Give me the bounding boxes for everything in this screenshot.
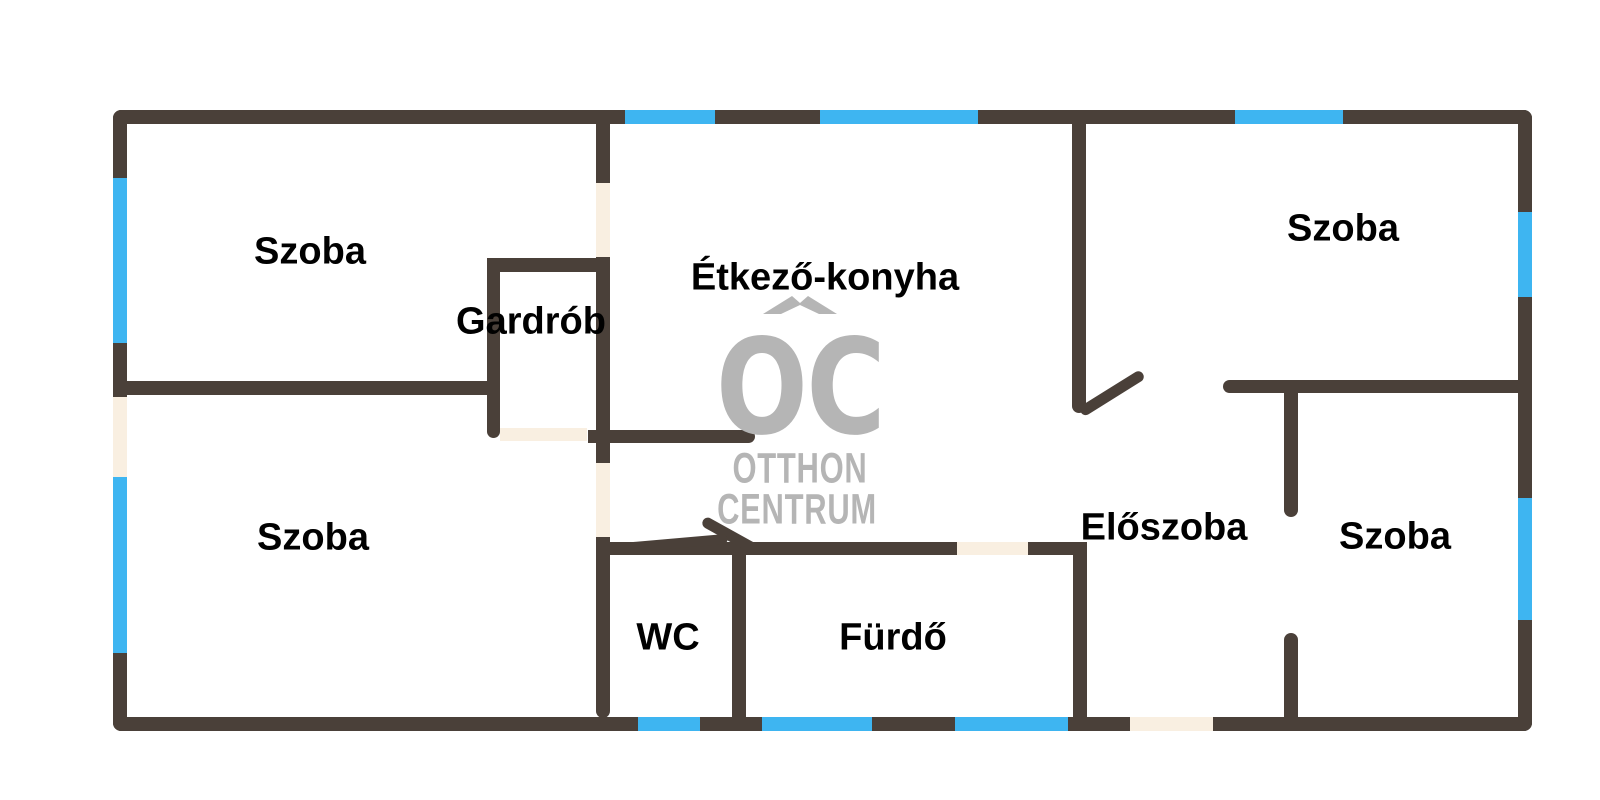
logo-text-centrum: CENTRUM	[717, 486, 877, 535]
door-opening-entrance	[1130, 717, 1213, 731]
room-label-szoba-bottom-left: Szoba	[257, 517, 369, 560]
room-label-szoba-top-right: Szoba	[1287, 208, 1399, 251]
window-top-kitchen-2	[820, 110, 978, 124]
window-right-upper	[1518, 212, 1532, 297]
room-label-etkezo-konyha: Étkező-konyha	[691, 257, 959, 300]
wall-top-right-room-south	[1223, 380, 1532, 393]
door-opening-bottom-left-room	[596, 463, 610, 537]
wall-hall-room-divider-upper	[1284, 393, 1298, 517]
wall-gardrob-top	[487, 258, 610, 272]
door-opening-left-wall	[113, 397, 127, 477]
window-left-lower	[113, 477, 127, 653]
room-label-szoba-bottom-right: Szoba	[1339, 516, 1451, 559]
window-bottom-bath-1	[762, 717, 872, 731]
wall-wc-bath-divider	[732, 542, 746, 718]
room-label-eloszoba: Előszoba	[1081, 507, 1248, 550]
door-opening-top-left-room	[596, 183, 610, 257]
wall-outer-right	[1518, 110, 1532, 731]
window-bottom-bath-2	[955, 717, 1068, 731]
wall-hall-room-divider-lower	[1284, 633, 1298, 718]
window-bottom-wc	[638, 717, 700, 731]
window-top-kitchen-1	[625, 110, 715, 124]
door-leaf-top-right-room	[1078, 369, 1146, 417]
wall-left-rooms-divider	[113, 381, 492, 395]
wall-bath-east	[1073, 542, 1087, 718]
window-left-upper	[113, 178, 127, 343]
logo-monogram: OC	[716, 311, 884, 465]
wall-gardrob-left	[487, 258, 500, 438]
room-label-gardrob: Gardrób	[456, 301, 606, 344]
wall-top-right-room-west	[1072, 124, 1086, 413]
room-label-szoba-top-left: Szoba	[254, 231, 366, 274]
window-right-lower	[1518, 498, 1532, 620]
room-label-furdo: Fürdő	[839, 617, 947, 660]
window-top-right-room	[1235, 110, 1343, 124]
floor-plan: OC OTTHON CENTRUM SzobaGardróbÉtkező-kon…	[0, 0, 1600, 800]
room-label-wc: WC	[636, 617, 699, 660]
door-opening-gardrob	[500, 428, 587, 441]
door-opening-bathroom	[957, 542, 1028, 555]
